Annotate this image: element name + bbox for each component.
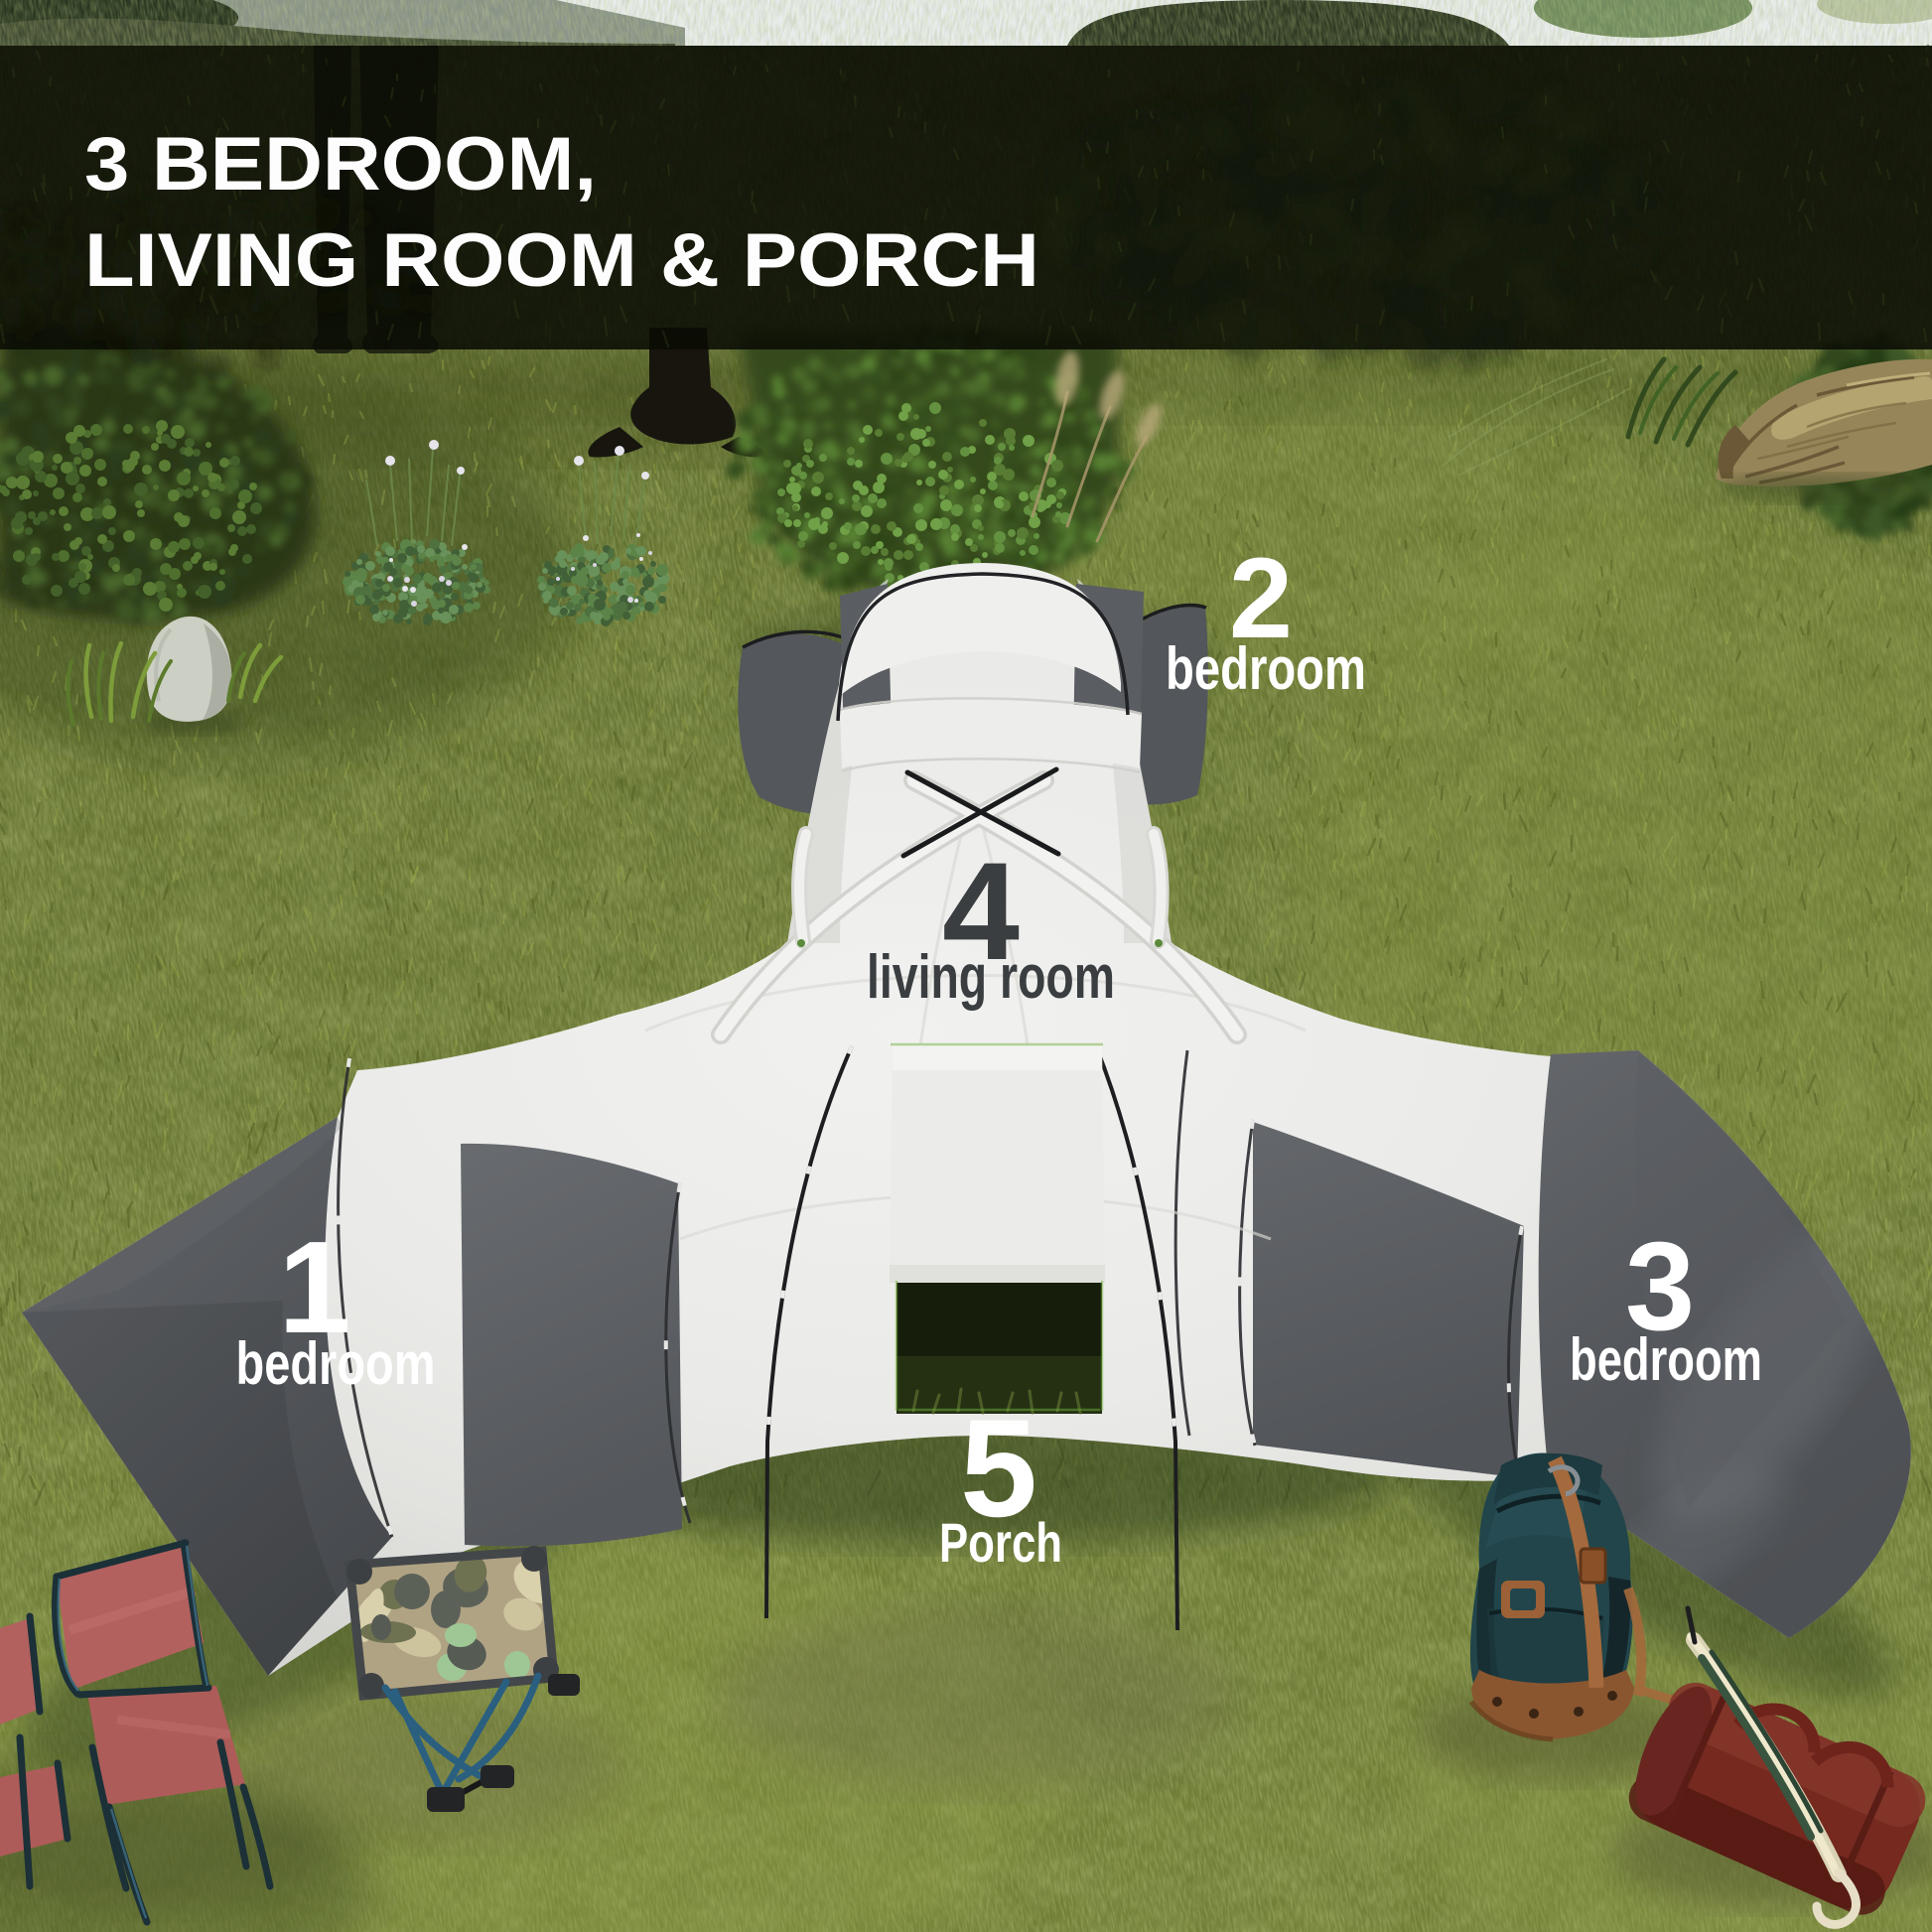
svg-text:living room: living room: [867, 943, 1115, 1012]
svg-text:3 BEDROOM,: 3 BEDROOM,: [84, 122, 597, 207]
svg-text:LIVING ROOM & PORCH: LIVING ROOM & PORCH: [84, 218, 1039, 303]
svg-text:bedroom: bedroom: [1166, 635, 1366, 702]
svg-text:Porch: Porch: [939, 1511, 1062, 1574]
svg-text:bedroom: bedroom: [1570, 1326, 1762, 1393]
svg-text:bedroom: bedroom: [236, 1330, 436, 1397]
